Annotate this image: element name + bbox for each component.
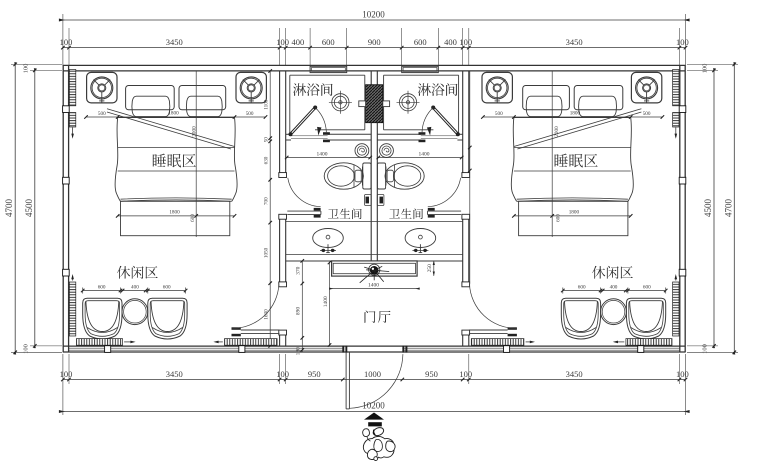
svg-text:1800: 1800 [570, 111, 581, 117]
svg-text:900: 900 [368, 37, 381, 47]
svg-text:100: 100 [60, 369, 73, 379]
svg-text:400: 400 [610, 284, 618, 290]
svg-text:1050: 1050 [264, 247, 270, 258]
svg-text:600: 600 [556, 214, 562, 222]
svg-text:400: 400 [444, 37, 457, 47]
svg-text:100: 100 [23, 344, 30, 354]
svg-text:100: 100 [702, 344, 709, 354]
svg-text:1800: 1800 [168, 111, 179, 117]
svg-text:100: 100 [676, 37, 689, 47]
svg-text:890: 890 [296, 307, 302, 316]
svg-text:3450: 3450 [166, 369, 183, 379]
svg-text:2000: 2000 [192, 126, 198, 137]
svg-text:600: 600 [414, 37, 427, 47]
svg-text:100: 100 [459, 369, 472, 379]
svg-text:3450: 3450 [166, 37, 183, 47]
svg-text:250: 250 [427, 264, 433, 273]
svg-text:370: 370 [296, 266, 302, 275]
svg-text:180: 180 [296, 347, 302, 356]
svg-text:400: 400 [292, 37, 305, 47]
svg-text:600: 600 [98, 284, 106, 290]
svg-text:950: 950 [425, 369, 438, 379]
svg-text:3450: 3450 [566, 369, 583, 379]
svg-text:500: 500 [246, 111, 254, 117]
svg-text:700: 700 [264, 197, 270, 205]
svg-text:10200: 10200 [362, 10, 385, 20]
svg-text:1800: 1800 [569, 210, 580, 216]
svg-text:1400: 1400 [419, 151, 430, 157]
svg-text:2000: 2000 [554, 126, 560, 137]
svg-text:1400: 1400 [368, 282, 379, 288]
svg-text:100: 100 [60, 37, 73, 47]
svg-text:4700: 4700 [723, 199, 733, 218]
svg-text:600: 600 [578, 284, 586, 290]
svg-text:600: 600 [163, 284, 171, 290]
svg-text:1100: 1100 [264, 99, 270, 110]
svg-text:50: 50 [264, 137, 270, 143]
svg-text:600: 600 [190, 214, 196, 222]
svg-text:500: 500 [643, 111, 651, 117]
svg-text:100: 100 [276, 369, 289, 379]
svg-text:4500: 4500 [703, 199, 713, 218]
svg-text:100: 100 [702, 64, 709, 74]
svg-text:100: 100 [276, 37, 289, 47]
svg-text:400: 400 [131, 284, 139, 290]
svg-text:950: 950 [308, 369, 321, 379]
svg-text:600: 600 [322, 37, 335, 47]
svg-text:4700: 4700 [4, 199, 14, 218]
svg-text:100: 100 [676, 369, 689, 379]
svg-text:500: 500 [98, 111, 106, 117]
svg-text:4500: 4500 [24, 199, 34, 218]
svg-text:1800: 1800 [169, 210, 180, 216]
svg-text:600: 600 [643, 284, 651, 290]
svg-text:630: 630 [264, 156, 270, 164]
svg-text:1400: 1400 [317, 151, 328, 157]
svg-text:3450: 3450 [566, 37, 583, 47]
svg-text:100: 100 [459, 37, 472, 47]
svg-text:100: 100 [23, 64, 30, 74]
svg-text:1400: 1400 [323, 296, 329, 307]
svg-text:500: 500 [495, 111, 503, 117]
svg-text:1000: 1000 [364, 369, 381, 379]
